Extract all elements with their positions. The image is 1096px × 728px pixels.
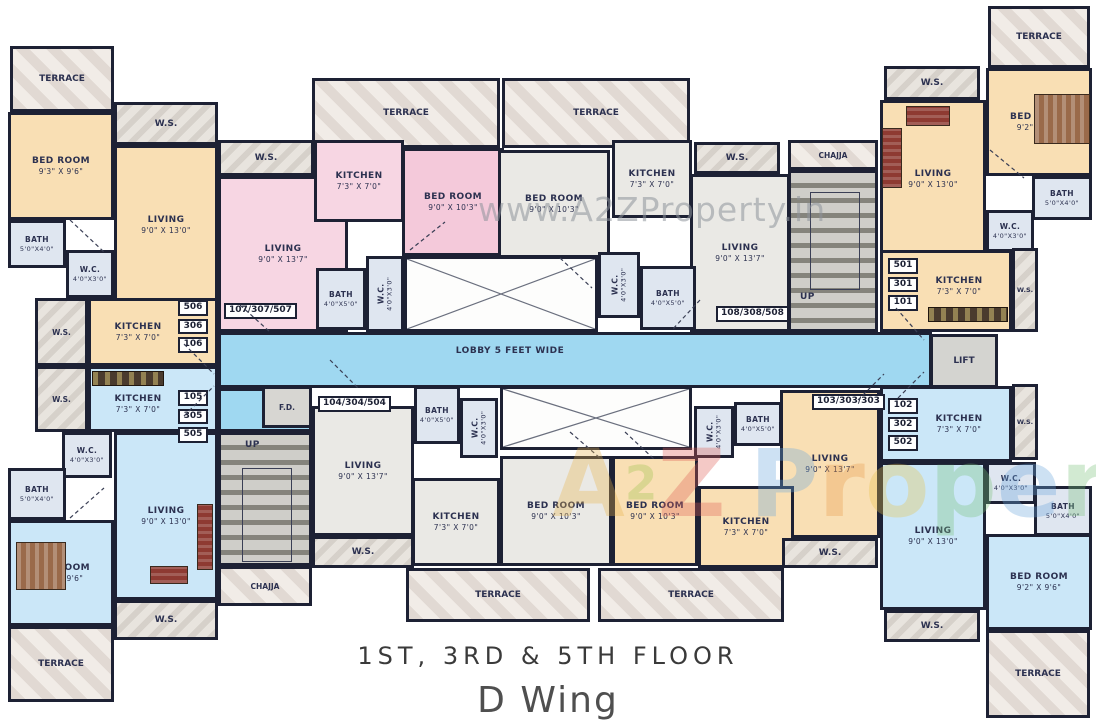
se-ws: W.S. — [884, 610, 980, 642]
watermark-letter: r — [1061, 430, 1096, 539]
watermark-letter: P — [750, 430, 819, 539]
left-chajja: CHAJJA — [218, 566, 312, 606]
ws-label: W.S. — [819, 548, 842, 558]
unit-label-107: 107/307/507 — [224, 303, 297, 319]
room-name: TERRACE — [668, 590, 714, 600]
flat-number-box: 101 — [888, 295, 918, 311]
room-dims: 5'0"X4'0" — [20, 245, 54, 253]
sw-flat-numbers: 105 305 505 — [178, 390, 208, 443]
sw-wc: W.C.4'0"X3'0" — [62, 432, 112, 478]
room-name: KITCHEN — [935, 414, 982, 425]
room-name: LIVING — [345, 461, 382, 472]
gray-ws: W.S. — [694, 142, 780, 174]
pink-kitchen: KITCHEN7'3" X 7'0" — [314, 140, 404, 222]
caption-floors: 1ST, 3RD & 5TH FLOOR — [0, 642, 1096, 670]
watermark-letter: e — [997, 430, 1061, 539]
room-name: W.C. — [376, 284, 385, 304]
room-dims: 4'0"X3'0" — [70, 456, 104, 464]
nw-flat-numbers: 506 306 106 — [178, 300, 208, 353]
bed-furniture — [16, 542, 66, 590]
room-dims: 4'0"X3'0" — [480, 411, 488, 445]
fd-box: F.D. — [262, 386, 312, 428]
room-dims: 5'0"X4'0" — [1045, 199, 1079, 207]
caption-wing: D Wing — [0, 680, 1096, 721]
bl-bath: BATH4'0"X5'0" — [414, 386, 460, 444]
flat-number-box: 306 — [178, 319, 208, 335]
pink-ws: W.S. — [218, 140, 314, 176]
nw-bath: BATH5'0"X4'0" — [8, 220, 66, 268]
ws-label: W.S. — [155, 119, 178, 129]
chajja-label: CHAJJA — [251, 582, 280, 591]
room-name: BATH — [746, 415, 770, 424]
unit-label-104: 104/304/504 — [318, 396, 391, 412]
room-name: LIVING — [722, 243, 759, 254]
ne-wc: W.C.4'0"X3'0" — [986, 210, 1034, 252]
room-dims: 4'0"X3'0" — [620, 268, 628, 302]
unit-label-103: 103/303/303 — [812, 394, 885, 410]
kitchen-counter — [928, 307, 1008, 322]
room-dims: 9'0" X 13'0" — [141, 517, 191, 526]
up-label: UP — [245, 440, 260, 450]
gray-terrace: TERRACE — [502, 78, 690, 148]
room-name: TERRACE — [1016, 32, 1062, 42]
room-dims: 9'0" X 13'0" — [141, 226, 191, 235]
sw-bath: BATH5'0"X4'0" — [8, 468, 66, 520]
up-label: UP — [800, 292, 815, 302]
nw-ws: W.S. — [114, 102, 218, 145]
top-duct — [404, 256, 598, 332]
watermark-letter: 2 — [625, 457, 658, 512]
flat-number-box: 506 — [178, 300, 208, 316]
room-name: KITCHEN — [114, 322, 161, 333]
left-ws-shaft-b: W.S. — [35, 366, 88, 432]
room-name: W.C. — [80, 265, 100, 274]
room-name: KITCHEN — [628, 169, 675, 180]
room-name: LIVING — [148, 215, 185, 226]
room-dims: 9'0" X 13'0" — [908, 180, 958, 189]
room-name: BED ROOM — [32, 156, 90, 167]
room-name: BATH — [656, 289, 680, 298]
room-dims: 9'2" X 9'6" — [1017, 583, 1061, 592]
room-dims: 4'0"X5'0" — [651, 299, 685, 307]
room-name: BATH — [25, 235, 49, 244]
flat-number-box: 105 — [178, 390, 208, 406]
floor-plan: TERRACE W.S. BED ROOM9'3" X 9'6" LIVING9… — [0, 0, 1096, 728]
room-name: TERRACE — [573, 108, 619, 118]
ws-label: W.S. — [1017, 286, 1033, 294]
room-dims: 7'3" X 7'0" — [434, 523, 478, 532]
sofa-furniture — [882, 128, 902, 188]
bl-ws: W.S. — [312, 536, 414, 568]
bed-furniture — [1034, 94, 1090, 144]
room-dims: 7'3" X 7'0" — [630, 180, 674, 189]
ne-terrace: TERRACE — [988, 6, 1090, 68]
watermark-url: www.A2ZProperty.in — [478, 190, 826, 229]
room-dims: 7'3" X 7'0" — [116, 333, 160, 342]
room-name: LIVING — [915, 169, 952, 180]
bl-wc: W.C.4'0"X3'0" — [460, 398, 498, 458]
flat-number-box: 501 — [888, 258, 918, 274]
pink-bath: BATH4'0"X5'0" — [316, 268, 366, 330]
ws-label: W.S. — [921, 621, 944, 631]
watermark-letter: A — [552, 430, 625, 539]
room-dims: 4'0"X3'0" — [993, 232, 1027, 240]
room-dims: 9'0" X 13'7" — [338, 472, 388, 481]
ws-label: W.S. — [726, 153, 749, 163]
watermark-brand: A2ZProperty — [552, 430, 1096, 539]
bl-kitchen: KITCHEN7'3" X 7'0" — [412, 478, 500, 566]
bl-living: LIVING9'0" X 13'7" — [312, 406, 414, 536]
room-name: W.C. — [1000, 222, 1020, 231]
room-dims: 5'0"X4'0" — [20, 495, 54, 503]
room-name: LIVING — [148, 506, 185, 517]
ws-label: W.S. — [255, 153, 278, 163]
pink-wc: W.C.4'0"X3'0" — [366, 256, 404, 332]
room-name: W.C. — [470, 418, 479, 438]
ws-label: W.S. — [155, 615, 178, 625]
watermark-letter: r — [819, 430, 865, 539]
nw-wc: W.C.4'0"X3'0" — [66, 250, 114, 298]
room-name: KITCHEN — [114, 394, 161, 405]
flat-number-box: 301 — [888, 277, 918, 293]
pink-terrace: TERRACE — [312, 78, 500, 148]
couch-furniture — [150, 566, 188, 584]
stair-rail — [242, 468, 292, 562]
ne-bath: BATH5'0"X4'0" — [1032, 176, 1092, 220]
room-dims: 9'0" X 10'3" — [428, 203, 478, 212]
ne-flat-numbers: 501 301 101 — [888, 258, 918, 311]
ws-label: W.S. — [1017, 418, 1033, 426]
flat-number-box: 102 — [888, 398, 918, 414]
room-name: KITCHEN — [935, 276, 982, 287]
room-dims: 4'0"X3'0" — [386, 277, 394, 311]
chajja-label: CHAJJA — [819, 151, 848, 160]
nw-terrace: TERRACE — [10, 46, 114, 112]
ws-label: W.S. — [921, 78, 944, 88]
room-name: BATH — [25, 485, 49, 494]
room-dims: 4'0"X3'0" — [73, 275, 107, 283]
room-name: LIVING — [265, 244, 302, 255]
room-name: W.C. — [77, 446, 97, 455]
se-bedroom: BED ROOM9'2" X 9'6" — [986, 534, 1092, 630]
room-dims: 9'3" X 9'6" — [39, 167, 83, 176]
room-dims: 9'0" X 13'7" — [258, 255, 308, 264]
lobby-label: LOBBY 5 FEET WIDE — [398, 346, 622, 356]
room-name: BATH — [329, 290, 353, 299]
lobby-corridor[interactable] — [218, 332, 932, 388]
ws-label: W.S. — [352, 547, 375, 557]
watermark-letter: p — [929, 430, 996, 539]
room-name: TERRACE — [39, 74, 85, 84]
room-dims: 4'0"X5'0" — [420, 416, 454, 424]
sofa-furniture — [906, 106, 950, 126]
br-ws: W.S. — [782, 538, 878, 568]
room-dims: 7'3" X 7'0" — [116, 405, 160, 414]
room-name: W.C. — [610, 275, 619, 295]
duct-cross — [407, 259, 595, 329]
ws-label: W.S. — [52, 395, 71, 404]
room-name: KITCHEN — [335, 171, 382, 182]
lift-label: LIFT — [953, 356, 974, 366]
room-dims: 4'0"X5'0" — [324, 300, 358, 308]
lift[interactable]: LIFT — [930, 334, 998, 388]
watermark-letter: o — [865, 430, 930, 539]
room-dims: 7'3" X 7'0" — [937, 287, 981, 296]
nw-bedroom: BED ROOM9'3" X 9'6" — [8, 112, 114, 220]
room-name: BED ROOM — [424, 192, 482, 203]
unit-label-108: 108/308/508 — [716, 306, 789, 322]
kitchen-counter — [92, 371, 164, 386]
room-name: BATH — [425, 406, 449, 415]
nw-living: LIVING9'0" X 13'0" — [114, 145, 218, 305]
room-name: TERRACE — [1015, 669, 1061, 679]
ne-ws-shaft: W.S. — [1012, 248, 1038, 332]
sw-ws: W.S. — [114, 600, 218, 640]
flat-number-box: 305 — [178, 409, 208, 425]
room-dims: 7'3" X 7'0" — [337, 182, 381, 191]
flat-number-box: 505 — [178, 427, 208, 443]
room-name: BED ROOM — [1010, 572, 1068, 583]
room-name: TERRACE — [475, 590, 521, 600]
gray-bath: BATH4'0"X5'0" — [640, 266, 696, 330]
flat-number-box: 106 — [178, 337, 208, 353]
br-terrace: TERRACE — [598, 568, 784, 622]
room-name: TERRACE — [383, 108, 429, 118]
room-name: BATH — [1050, 189, 1074, 198]
right-chajja: CHAJJA — [788, 140, 878, 170]
left-ws-shaft-a: W.S. — [35, 298, 88, 366]
room-name: KITCHEN — [432, 512, 479, 523]
gray-wc: W.C.4'0"X3'0" — [598, 252, 640, 318]
ws-label: W.S. — [52, 328, 71, 337]
bl-terrace: TERRACE — [406, 568, 590, 622]
watermark-letter: Z — [657, 430, 725, 539]
ne-ws: W.S. — [884, 66, 980, 100]
sofa-furniture — [197, 504, 213, 570]
room-dims: 9'0" X 13'7" — [715, 254, 765, 263]
fd-label: F.D. — [279, 403, 295, 412]
